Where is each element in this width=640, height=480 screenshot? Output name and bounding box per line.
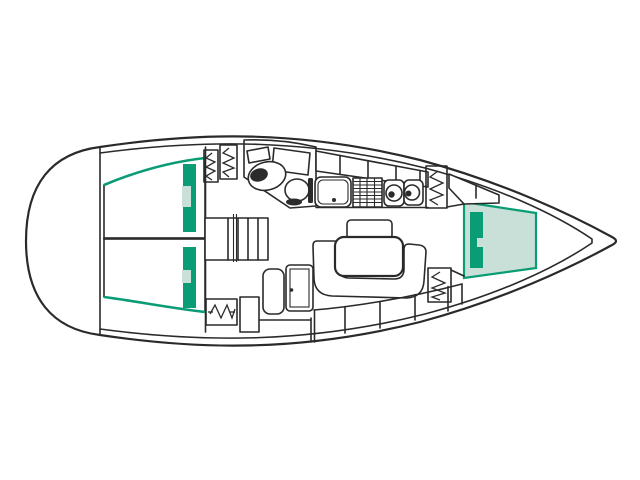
nav-seat (263, 269, 284, 314)
head-door (308, 178, 313, 203)
toilet-base (286, 199, 302, 206)
deck-plan-svg (0, 0, 640, 480)
sink-drain (332, 198, 336, 202)
companionway-steps (205, 214, 268, 262)
salon-table (335, 237, 403, 276)
v-berth-cushion-notch (477, 238, 484, 247)
nav-locker (240, 297, 259, 332)
galley-burners (384, 180, 423, 206)
toilet (285, 179, 309, 201)
yacht-deck-plan (0, 0, 640, 480)
galley-grill (353, 178, 382, 207)
chart-table-knob (290, 288, 294, 292)
chart-table-top (290, 269, 309, 307)
